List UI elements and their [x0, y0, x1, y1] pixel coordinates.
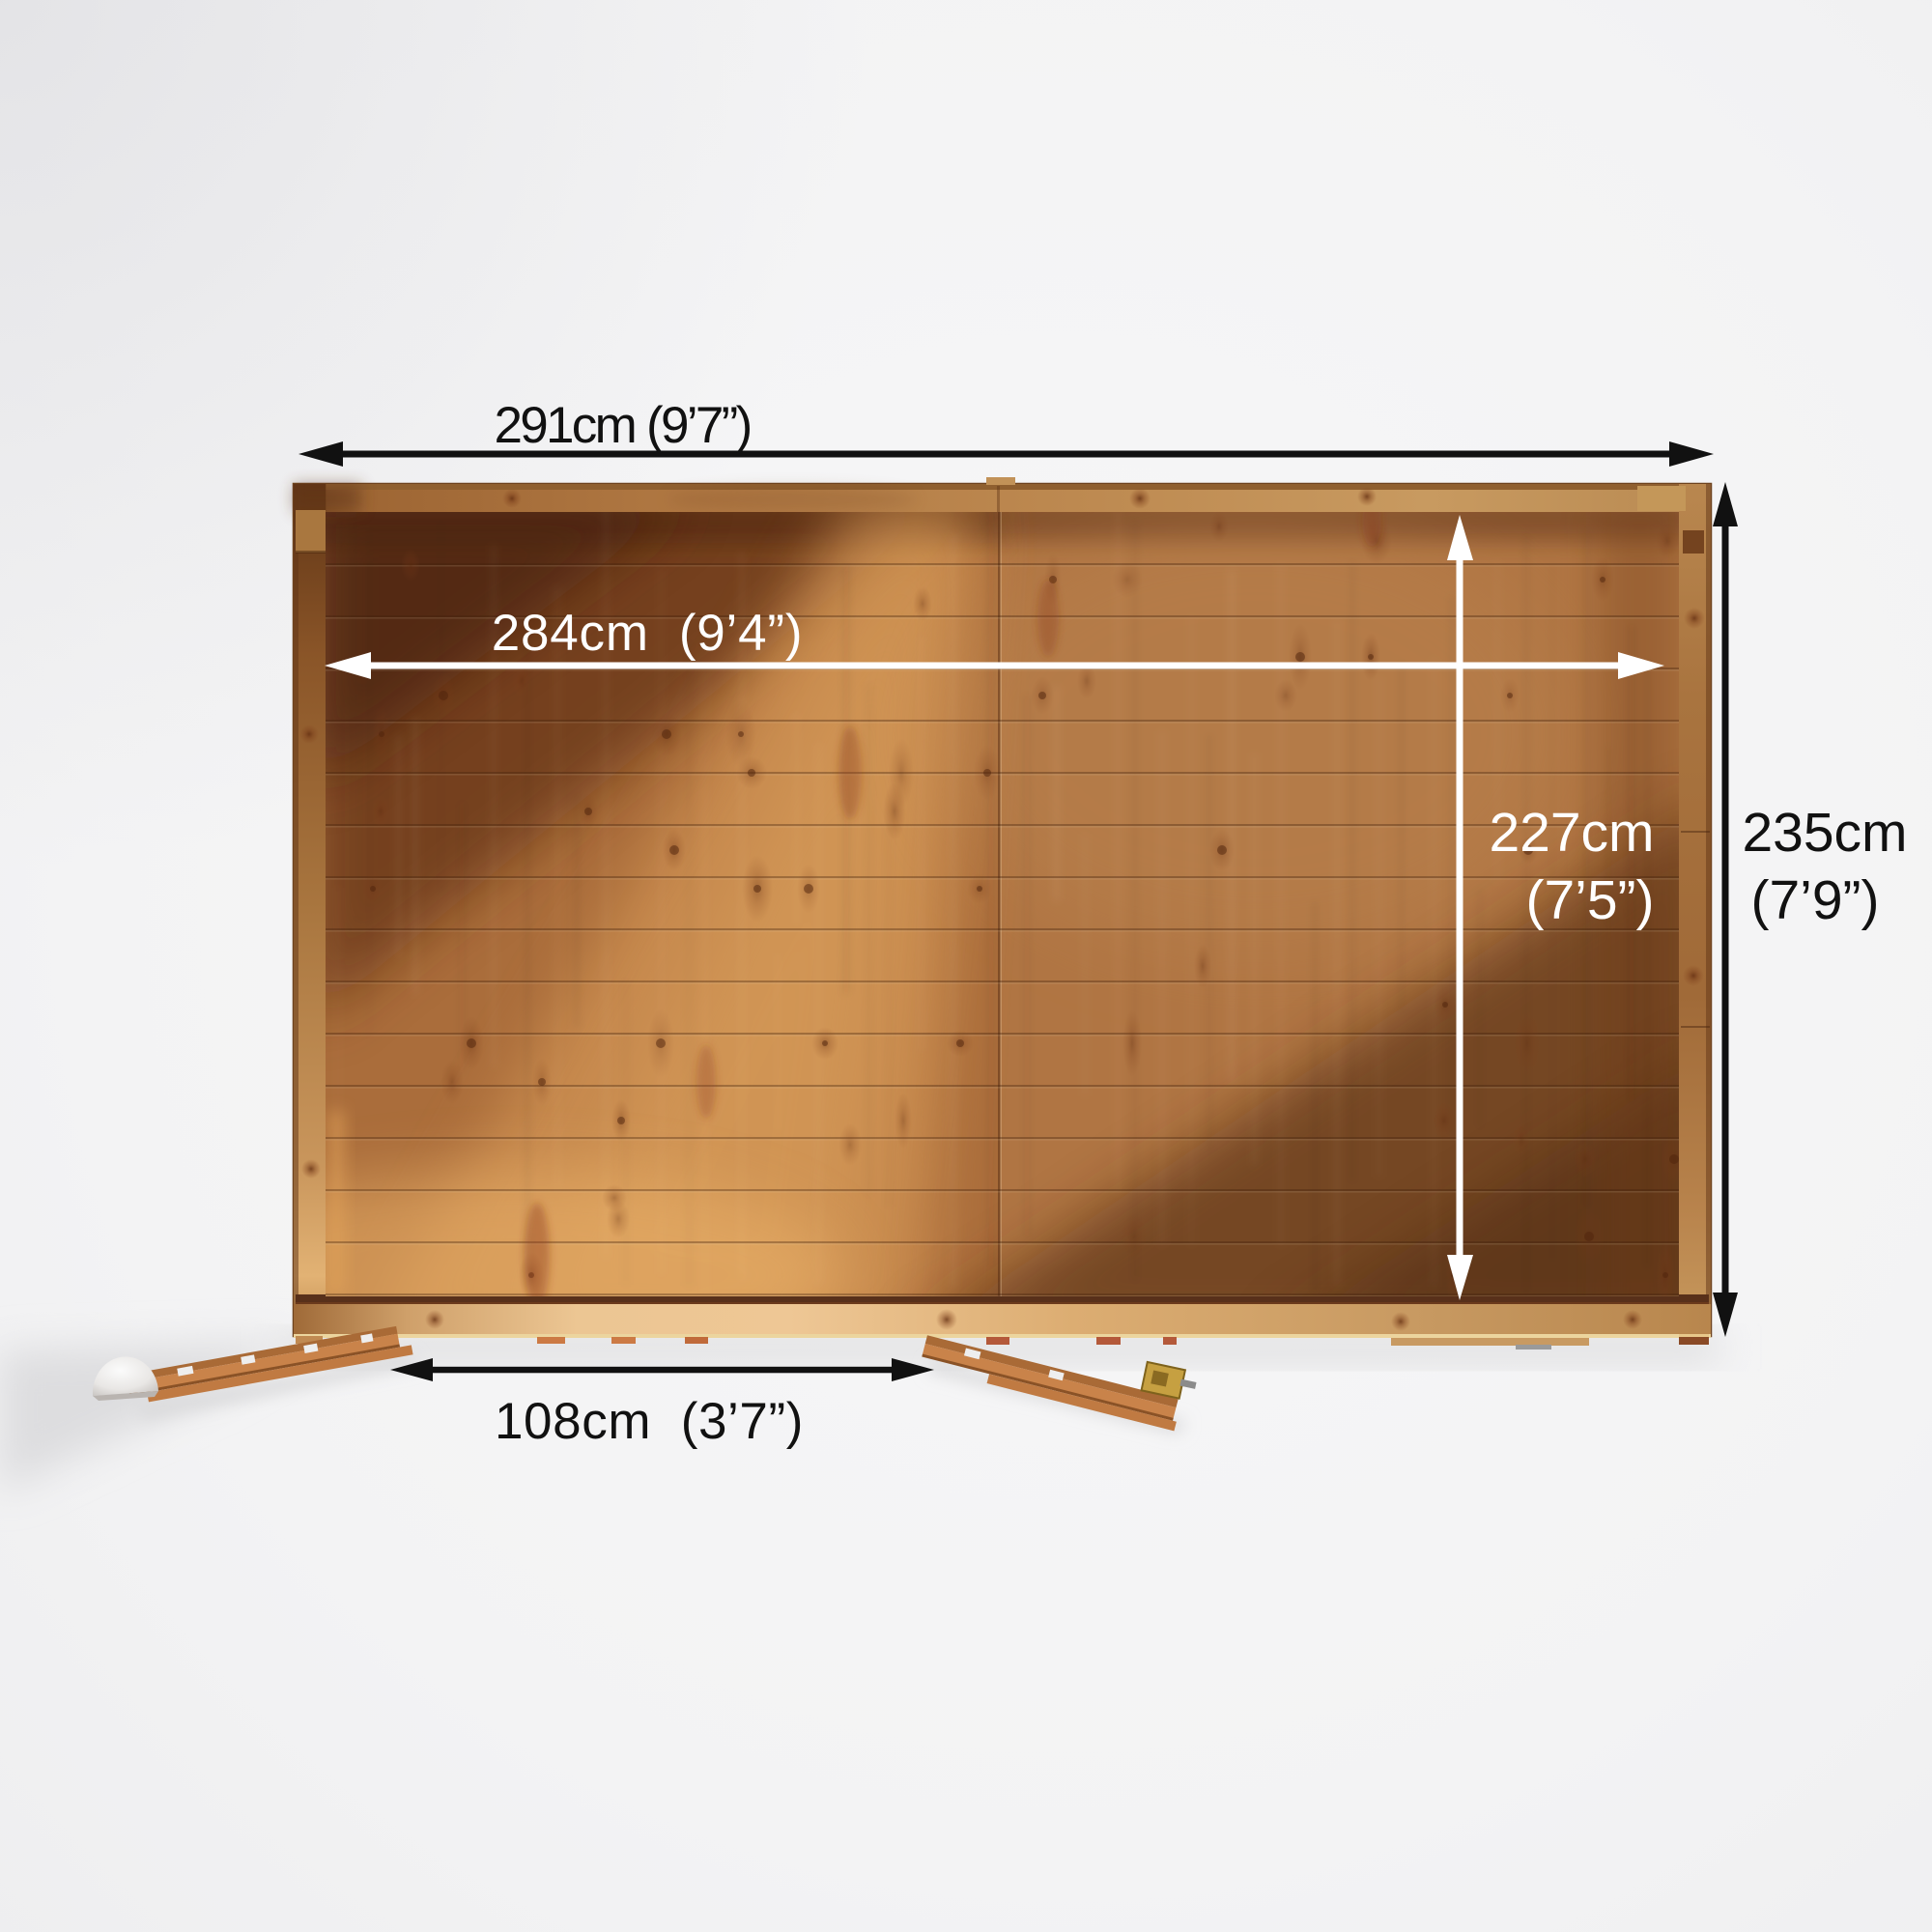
svg-text:227cm: 227cm [1489, 802, 1654, 864]
svg-text:(7’9”): (7’9”) [1750, 869, 1879, 931]
svg-text:284cm (9’4”): 284cm (9’4”) [492, 605, 804, 662]
svg-text:291cm (9’7”): 291cm (9’7”) [494, 397, 750, 454]
svg-text:(7’5”): (7’5”) [1525, 869, 1654, 931]
svg-text:235cm: 235cm [1742, 802, 1907, 864]
svg-text:108cm (3’7”): 108cm (3’7”) [495, 1393, 804, 1450]
